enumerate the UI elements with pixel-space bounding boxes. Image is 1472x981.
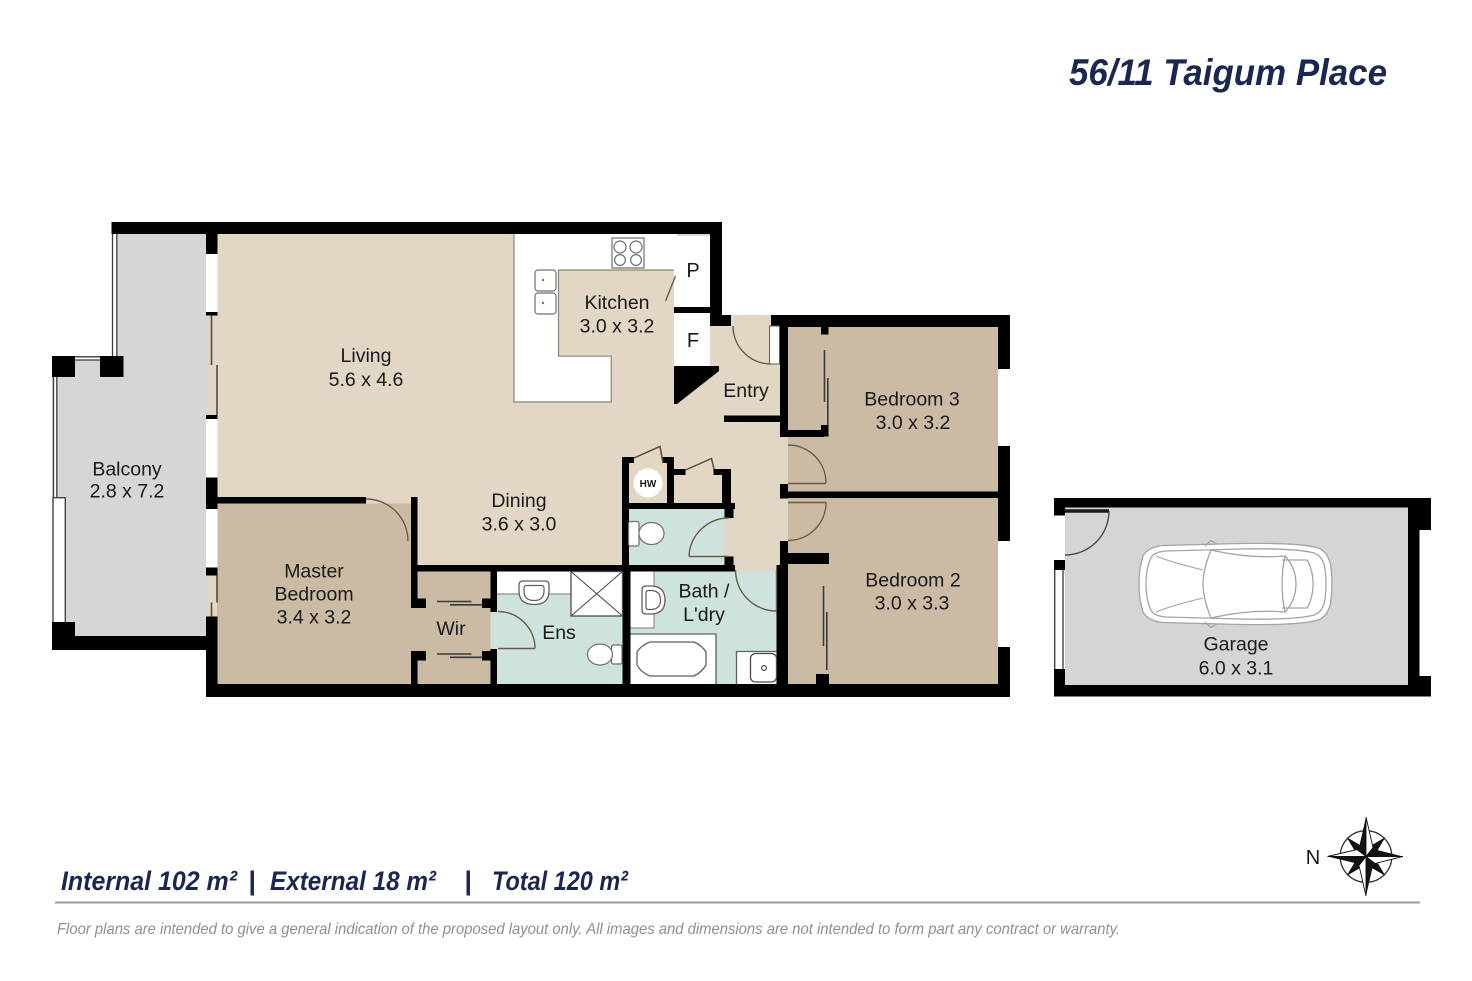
svg-text:Master: Master: [284, 561, 344, 583]
svg-text:Kitchen: Kitchen: [584, 292, 649, 314]
svg-text:|: |: [464, 866, 472, 896]
svg-text:|: |: [248, 866, 256, 896]
svg-text:56/11 Taigum Place: 56/11 Taigum Place: [1069, 52, 1387, 93]
svg-text:3.0 x 3.2: 3.0 x 3.2: [876, 412, 951, 434]
svg-text:HW: HW: [640, 479, 657, 490]
svg-text:Total 120 m²: Total 120 m²: [492, 866, 629, 896]
svg-text:Dining: Dining: [491, 490, 546, 512]
svg-text:Bedroom 3: Bedroom 3: [864, 389, 959, 411]
svg-text:Living: Living: [341, 345, 392, 367]
svg-text:Entry: Entry: [723, 380, 769, 402]
svg-text:Bedroom: Bedroom: [274, 584, 353, 606]
svg-text:Bedroom 2: Bedroom 2: [865, 570, 960, 592]
svg-text:Wir: Wir: [436, 618, 466, 640]
svg-text:3.6 x 3.0: 3.6 x 3.0: [482, 514, 557, 536]
svg-text:Internal 102 m²: Internal 102 m²: [61, 866, 238, 896]
svg-text:Ens: Ens: [542, 622, 576, 644]
svg-text:Garage: Garage: [1203, 634, 1268, 656]
svg-text:Balcony: Balcony: [92, 459, 162, 481]
svg-text:3.4 x 3.2: 3.4 x 3.2: [277, 607, 352, 629]
svg-text:3.0 x 3.3: 3.0 x 3.3: [875, 593, 950, 615]
svg-text:P: P: [686, 260, 699, 282]
svg-text:N: N: [1306, 847, 1320, 869]
svg-text:F: F: [687, 330, 699, 352]
svg-text:L'dry: L'dry: [683, 604, 725, 626]
svg-text:Floor plans are intended to gi: Floor plans are intended to give a gener…: [57, 921, 1120, 938]
svg-text:3.0 x 3.2: 3.0 x 3.2: [580, 316, 655, 338]
svg-text:2.8 x 7.2: 2.8 x 7.2: [90, 481, 165, 503]
svg-text:Bath /: Bath /: [679, 581, 731, 603]
svg-text:6.0 x 3.1: 6.0 x 3.1: [1199, 658, 1274, 680]
svg-text:5.6 x 4.6: 5.6 x 4.6: [329, 369, 404, 391]
svg-text:External 18 m²: External 18 m²: [270, 866, 437, 896]
